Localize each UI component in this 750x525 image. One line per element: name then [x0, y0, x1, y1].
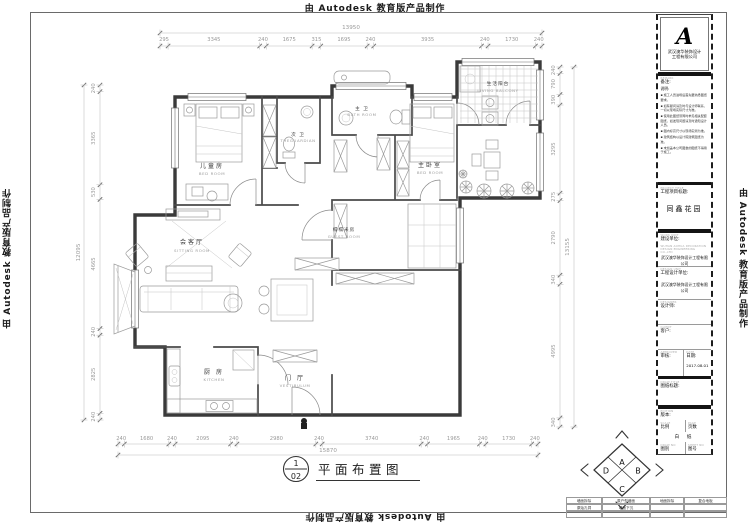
svg-text:340: 340	[551, 275, 557, 285]
compass-letter-left: D	[603, 467, 609, 476]
svg-text:340: 340	[551, 417, 557, 427]
svg-text:2980: 2980	[270, 436, 283, 442]
svg-text:3295: 3295	[551, 142, 557, 155]
svg-text:SITTING ROOM: SITTING ROOM	[174, 248, 210, 253]
date-value: 2017.08.01	[686, 363, 708, 368]
project-section: PROJECT TITLE 工程项目标题: 同鑫花园	[658, 185, 711, 229]
compass-letter-right: B	[635, 467, 641, 476]
svg-text:15870: 15870	[319, 448, 337, 454]
svg-text:KITCHEN: KITCHEN	[203, 377, 224, 382]
svg-text:240: 240	[116, 436, 126, 442]
room-label-living-balcony: 生活阳台	[487, 80, 509, 87]
svg-text:790: 790	[551, 79, 557, 89]
svg-text:4665: 4665	[91, 257, 97, 270]
svg-text:13155: 13155	[565, 238, 571, 256]
svg-text:390: 390	[551, 95, 557, 105]
svg-text:275: 275	[551, 192, 557, 202]
svg-text:1965: 1965	[447, 436, 460, 442]
notes-label: 备注:	[661, 80, 709, 86]
legend-table: 墙面拆除 原户型墙面 地面拆除 复合地板 原始孔洞 墙面下沉	[566, 497, 727, 518]
company-name-line2: 工程有限公司	[668, 54, 702, 60]
notes-section: REMARK 备注: 说明: 施工人员进场后首先要熟悉图纸要求。 如有疑问请及时…	[658, 76, 711, 182]
svg-text:2790: 2790	[551, 231, 557, 244]
detail-number: 1	[293, 459, 298, 468]
logo-glyph: A	[676, 28, 693, 48]
project-label: 工程项目标题:	[661, 190, 709, 196]
svg-text:240: 240	[530, 436, 540, 442]
svg-text:240: 240	[365, 37, 375, 43]
svg-text:240: 240	[91, 412, 97, 422]
svg-text:3345: 3345	[207, 37, 220, 43]
client-section: CLIENT 客户:	[658, 324, 711, 349]
svg-text:1680: 1680	[140, 436, 153, 442]
note-item: 如有疑问请及时与设计师联系，一切以现场实际尺寸为准。	[661, 104, 709, 113]
svg-text:295: 295	[159, 37, 169, 43]
compass-letter-bottom: C	[619, 485, 625, 494]
title-block: A 武汉澳华装饰设计 工程有限公司 REMARK 备注: 说明: 施工人员进场后…	[656, 14, 713, 455]
svg-text:GUEST ROOM: GUEST ROOM	[328, 234, 361, 239]
svg-text:3365: 3365	[91, 132, 97, 145]
svg-text:240: 240	[314, 436, 324, 442]
legend-cell	[566, 511, 603, 518]
note-item: 未加盖本公司图章的图纸不得用于施工。	[661, 146, 709, 155]
svg-text:2095: 2095	[196, 436, 209, 442]
entry-marker-icon	[301, 418, 307, 429]
svg-text:2825: 2825	[91, 368, 97, 381]
room-label-sitting: 会客厅	[180, 238, 204, 246]
svg-text:3935: 3935	[421, 37, 434, 43]
svg-text:3740: 3740	[365, 436, 378, 442]
room-label-master-bed: 主卧室	[418, 161, 442, 169]
svg-text:240: 240	[551, 65, 557, 75]
note-item: 建筑结构以设计院建筑图纸为准。	[661, 135, 709, 144]
svg-text:1675: 1675	[283, 37, 296, 43]
svg-text:THEGUARDIAN: THEGUARDIAN	[279, 138, 315, 143]
svg-text:1695: 1695	[337, 37, 350, 43]
svg-text:BED ROOM: BED ROOM	[199, 171, 225, 176]
svg-text:315: 315	[311, 37, 321, 43]
svg-text:13950: 13950	[342, 25, 360, 31]
svg-text:240: 240	[229, 436, 239, 442]
svg-text:4995: 4995	[551, 344, 557, 357]
room-label-master-bath: 主 卫	[355, 105, 369, 112]
designer-section: DESIGNER 设计师:	[658, 299, 711, 324]
approval-section: APPROVED 审核: DATE 日期: 2017.08.01	[658, 349, 711, 376]
drawing-title: 平面布置图	[318, 462, 403, 477]
build-unit-section: WORK UNIT 建设单位: WUHAN AOHUA DECORATION D…	[658, 233, 711, 266]
room-labels: 儿童房 BED ROOM 次 卫 THEGUARDIAN 主 卫 BATH RO…	[174, 80, 519, 388]
svg-text:LIVING BALCONY: LIVING BALCONY	[477, 88, 518, 93]
svg-text:240: 240	[258, 37, 268, 43]
svg-text:240: 240	[419, 436, 429, 442]
sheet-number: 02	[291, 472, 301, 481]
svg-text:VESTIBULUM: VESTIBULUM	[280, 383, 311, 388]
room-label-kitchen: 厨 房	[204, 368, 224, 376]
svg-text:BATH ROOM: BATH ROOM	[347, 112, 376, 117]
balcony-plants	[459, 170, 534, 198]
svg-text:240: 240	[167, 436, 177, 442]
drawing-label: 1 02 平面布置图	[284, 457, 421, 482]
room-label-guest: 榻榻米房	[333, 226, 355, 233]
svg-text:BED ROOM: BED ROOM	[417, 170, 443, 175]
company-logo: A 武汉澳华装饰设计 工程有限公司	[660, 17, 709, 71]
legend-cell	[650, 511, 685, 518]
svg-text:240: 240	[480, 37, 490, 43]
sheet-title-section: DRAW TITLE 图纸标题:	[658, 379, 711, 405]
design-unit-section: DESIGN UNIT 工程设计单位: 武汉澳华装饰设计工程有限公司	[658, 266, 711, 299]
legend-cell	[684, 511, 728, 518]
svg-text:530: 530	[91, 187, 97, 197]
room-label-vestibule: 门 厅	[285, 374, 305, 382]
svg-text:12095: 12095	[76, 243, 82, 261]
note-item: 使用此图纸须同时参见相关配套图纸，如发现问题请及时通知设计人员。	[661, 114, 709, 127]
note-item: 施工人员进场后首先要熟悉图纸要求。	[661, 93, 709, 102]
version-section: EDITION 版本: SCALE 比例 PAGE 页数 白 纸 DRAW NO…	[658, 409, 711, 454]
design-unit-value: 武汉澳华装饰设计工程有限公司	[661, 282, 709, 294]
project-name: 同鑫花园	[661, 204, 709, 214]
svg-text:1730: 1730	[502, 436, 515, 442]
svg-text:240: 240	[478, 436, 488, 442]
svg-text:240: 240	[91, 83, 97, 93]
svg-text:240: 240	[91, 327, 97, 337]
note-item: 图内标高尺寸以现场实测为准。	[661, 129, 709, 133]
drawing-sheet: 由 Autodesk 教育版产品制作 由 Autodesk 教育版产品制作 由 …	[0, 0, 750, 525]
floor-plan-svg: 儿童房 BED ROOM 次 卫 THEGUARDIAN 主 卫 BATH RO…	[0, 0, 750, 525]
svg-text:240: 240	[534, 37, 544, 43]
room-label-second-bath: 次 卫	[291, 131, 305, 138]
svg-text:1730: 1730	[505, 37, 518, 43]
compass-letter-top: A	[619, 458, 625, 467]
room-label-children: 儿童房	[200, 162, 224, 170]
paper-value: 白 纸	[658, 432, 711, 442]
legend-cell	[602, 511, 651, 518]
